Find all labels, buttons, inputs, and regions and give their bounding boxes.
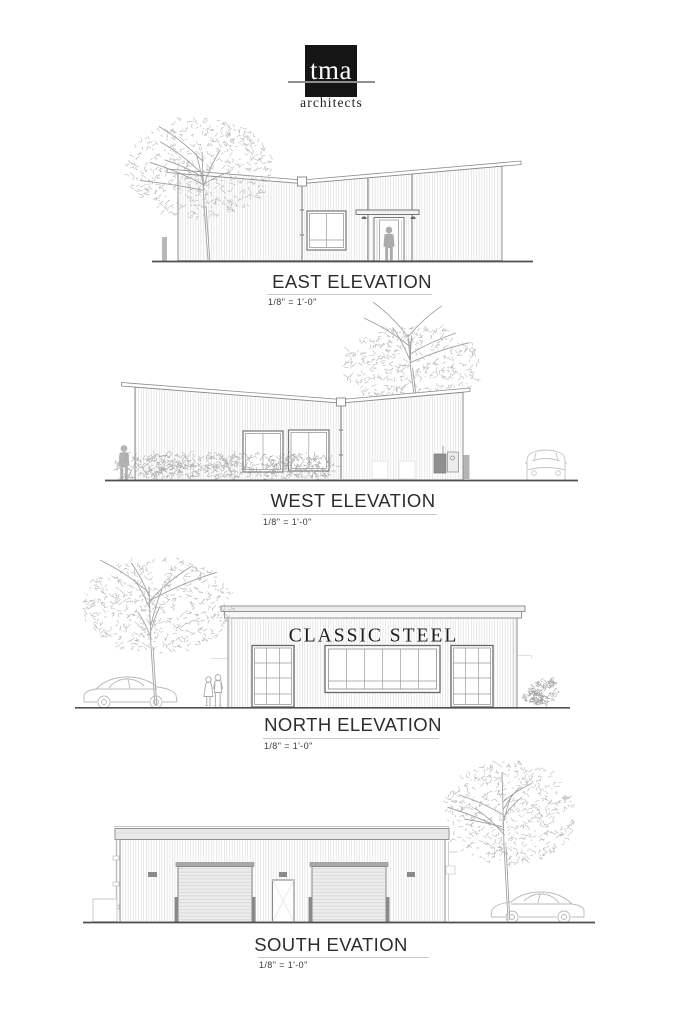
tree-trunk-branches — [100, 560, 217, 706]
south-man-door — [273, 880, 295, 922]
south-scale-note: 1/8" = 1'-0" — [259, 960, 308, 970]
east-scale-note: 1/8" = 1'-0" — [268, 297, 317, 307]
north-center-window-band — [325, 646, 440, 693]
west-corner-downspout — [464, 455, 470, 479]
north-right-glazed-door — [451, 646, 493, 708]
west-utility-box-light — [448, 452, 459, 472]
north-elevation-label: NORTH ELEVATION — [253, 714, 453, 736]
building-signage: CLASSIC STEEL — [289, 626, 459, 647]
north-scale-note: 1/8" = 1'-0" — [264, 741, 313, 751]
east-elevation-label: EAST ELEVATION — [252, 271, 452, 293]
north-shrub — [522, 678, 559, 708]
south-elevation-drawing — [83, 761, 595, 924]
south-ground-box — [93, 899, 117, 922]
tree-trunk-branches — [448, 772, 532, 920]
east-bollard — [162, 237, 167, 261]
elevations-linework: CLASSIC STEEL — [0, 0, 683, 1024]
north-cornice-cap — [221, 606, 525, 612]
north-classic-car — [84, 677, 177, 708]
south-classic-car — [491, 892, 584, 923]
west-utility-box-dark — [434, 454, 446, 473]
north-elevation-drawing: CLASSIC STEEL — [75, 557, 570, 708]
west-label-rule — [262, 514, 437, 515]
north-cornice-band — [225, 612, 522, 619]
west-elevation-drawing — [105, 302, 578, 481]
drawing-sheet: CLASSIC STEEL — [0, 0, 683, 1024]
west-pad-1 — [372, 461, 388, 479]
east-downspout-head — [298, 177, 307, 186]
west-car-front — [525, 450, 567, 480]
west-downspout-head — [337, 398, 346, 406]
south-garage-door-right — [309, 863, 390, 923]
south-tree — [444, 761, 575, 921]
logo-subtitle: architects — [290, 95, 373, 111]
south-elevation-label: SOUTH EVATION — [231, 934, 431, 956]
west-pad-2 — [399, 461, 415, 479]
north-tree — [83, 557, 235, 706]
north-couple-figures — [204, 675, 223, 706]
south-fascia-band — [115, 829, 449, 840]
north-label-rule — [263, 738, 439, 739]
east-elevation-drawing — [124, 117, 533, 262]
south-label-rule — [258, 957, 429, 958]
west-elevation-label: WEST ELEVATION — [253, 490, 453, 512]
logo-monogram: tma — [305, 57, 357, 84]
west-scale-note: 1/8" = 1'-0" — [263, 517, 312, 527]
south-right-utility — [446, 842, 458, 921]
foliage-scribble — [444, 761, 575, 868]
east-label-rule — [267, 294, 432, 295]
north-left-glazed-door — [252, 646, 294, 708]
east-door-canopy — [356, 210, 419, 215]
foliage-scribble — [83, 557, 235, 653]
south-garage-door-left — [175, 863, 256, 923]
